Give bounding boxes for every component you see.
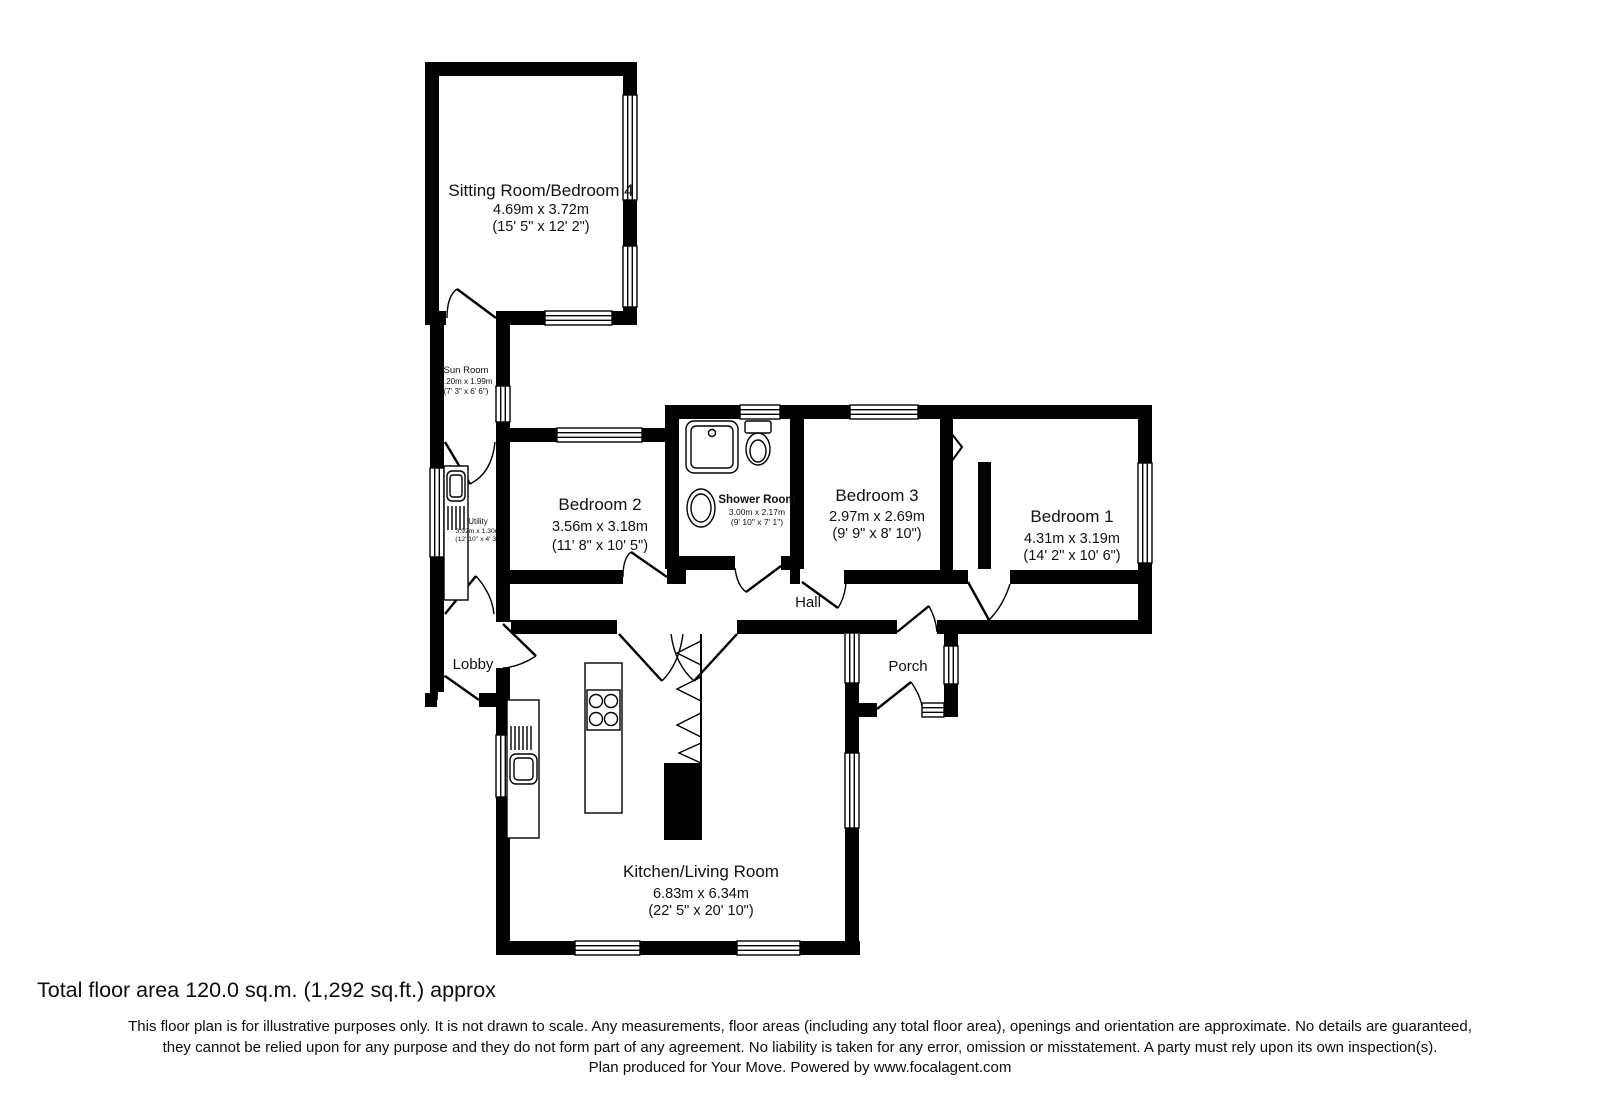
window-icon [1138,463,1152,563]
room-label-shower-imperial: (9' 10" x 7' 1") [731,517,783,527]
chimney-block [664,634,702,840]
floor-plan-canvas: Sitting Room/Bedroom 4 4.69m x 3.72m (15… [0,0,1600,1120]
window-icon [737,941,800,955]
window-icon [496,386,510,422]
room-label-lobby: Lobby [453,656,494,673]
double-door-icon [619,634,737,681]
hob-icon [587,690,620,730]
room-label-sitting-metric: 4.69m x 3.72m [493,202,589,218]
wall-break-icon [677,641,701,763]
room-label-sun-imperial: (7' 3" x 6' 6") [444,387,489,396]
room-label-shower-name: Shower Room [718,494,795,506]
room-label-kitchen-metric: 6.83m x 6.34m [653,886,749,902]
toilet-icon [745,421,771,465]
room-label-bedroom3-metric: 2.97m x 2.69m [829,509,925,525]
room-label-bedroom2-name: Bedroom 2 [558,495,641,514]
room-label-hall: Hall [795,594,821,611]
window-icon [850,405,918,419]
basin-icon [687,489,715,527]
window-icon [845,753,859,828]
window-icon [545,311,612,325]
room-label-bedroom3-name: Bedroom 3 [835,486,918,505]
window-icon [575,941,640,955]
room-label-utility-imperial: (12' 10" x 4' 3") [455,536,501,543]
shower-tray-icon [686,421,738,473]
room-label-bedroom1-name: Bedroom 1 [1030,507,1113,526]
window-icon [430,468,444,557]
room-label-porch: Porch [888,658,927,675]
disclaimer-block: This floor plan is for illustrative purp… [0,1017,1600,1079]
room-label-bedroom1-metric: 4.31m x 3.19m [1024,531,1120,547]
room-label-sitting-name: Sitting Room/Bedroom 4 [448,181,633,200]
window-icon [922,703,944,717]
kitchen-island [585,663,622,813]
window-icon [944,646,958,684]
room-label-sun-name: Sun Room [444,365,489,376]
disclaimer-line-3: Plan produced for Your Move. Powered by … [0,1058,1600,1079]
room-label-sitting-imperial: (15' 5" x 12' 2") [492,219,589,235]
room-label-sun-metric: 2.20m x 1.99m [440,377,493,386]
disclaimer-line-2: they cannot be relied upon for any purpo… [0,1038,1600,1059]
floor-plan-page: Sitting Room/Bedroom 4 4.69m x 3.72m (15… [0,0,1600,1120]
room-label-bedroom1-imperial: (14' 2" x 10' 6") [1023,548,1120,564]
room-labels-layer: Sitting Room/Bedroom 4 4.69m x 3.72m (15… [440,181,1121,919]
room-label-kitchen-name: Kitchen/Living Room [623,862,779,881]
total-area-text: Total floor area 120.0 sq.m. (1,292 sq.f… [37,978,496,1003]
room-label-shower-metric: 3.00m x 2.17m [729,507,785,517]
room-label-utility-name: Utility [468,517,488,526]
room-label-utility-metric: 3.92m x 1.30m [456,528,501,535]
window-icon [557,428,642,442]
room-label-bedroom2-imperial: (11' 8" x 10' 5") [552,538,648,554]
window-icon [623,246,637,307]
window-icon [740,405,780,419]
door-icon [968,582,1010,620]
room-label-kitchen-imperial: (22' 5" x 20' 10") [648,903,753,919]
room-label-bedroom2-metric: 3.56m x 3.18m [552,519,648,535]
kitchen-sink-icon [507,700,539,838]
disclaimer-line-1: This floor plan is for illustrative purp… [0,1017,1600,1038]
window-icon [845,633,859,683]
room-label-bedroom3-imperial: (9' 9" x 8' 10") [832,526,921,542]
